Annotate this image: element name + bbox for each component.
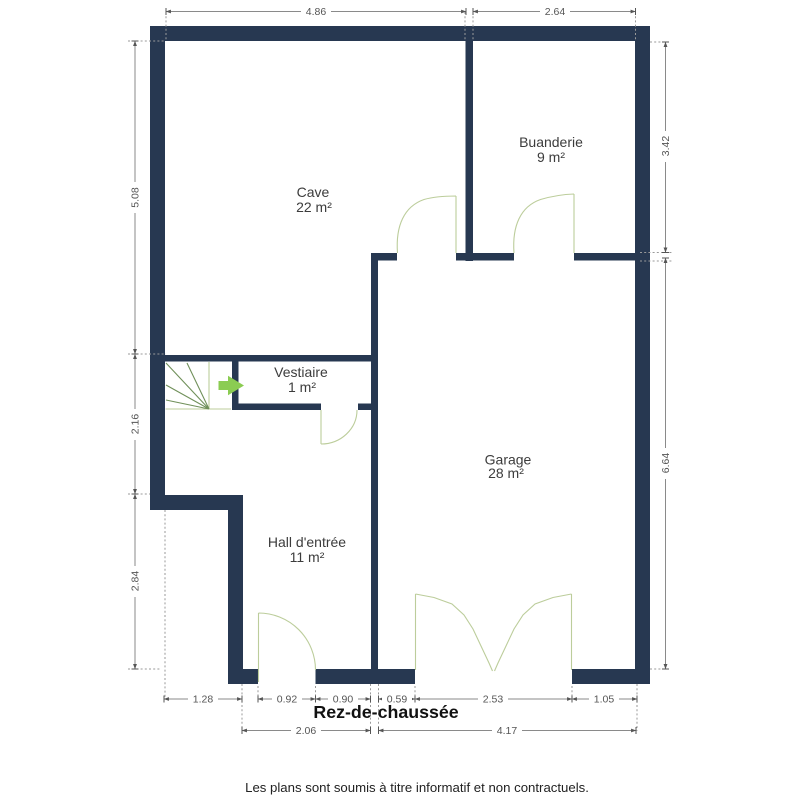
svg-text:1.05: 1.05 — [594, 694, 615, 706]
svg-text:28 m²: 28 m² — [488, 465, 524, 481]
svg-text:9 m²: 9 m² — [537, 149, 565, 165]
svg-text:6.64: 6.64 — [660, 453, 672, 474]
svg-text:4.86: 4.86 — [306, 6, 327, 18]
svg-text:3.42: 3.42 — [660, 136, 672, 157]
svg-text:Cave: Cave — [297, 184, 330, 200]
svg-text:5.08: 5.08 — [130, 187, 142, 208]
svg-text:2.16: 2.16 — [130, 414, 142, 435]
svg-text:Buanderie: Buanderie — [519, 134, 583, 150]
svg-text:Vestiaire: Vestiaire — [274, 364, 328, 380]
svg-text:2.64: 2.64 — [545, 6, 566, 18]
svg-text:Rez-de-chaussée: Rez-de-chaussée — [313, 702, 458, 722]
svg-text:1 m²: 1 m² — [288, 379, 316, 395]
svg-text:2.53: 2.53 — [483, 694, 504, 706]
svg-text:2.06: 2.06 — [296, 725, 317, 737]
svg-text:1.28: 1.28 — [193, 694, 214, 706]
svg-text:Hall d'entrée: Hall d'entrée — [268, 534, 346, 550]
svg-text:22 m²: 22 m² — [296, 199, 332, 215]
svg-text:4.17: 4.17 — [497, 725, 518, 737]
svg-text:Les plans sont soumis à titre: Les plans sont soumis à titre informatif… — [245, 780, 589, 795]
svg-text:11 m²: 11 m² — [290, 549, 325, 565]
svg-text:2.84: 2.84 — [130, 571, 142, 592]
svg-text:0.92: 0.92 — [277, 694, 298, 706]
